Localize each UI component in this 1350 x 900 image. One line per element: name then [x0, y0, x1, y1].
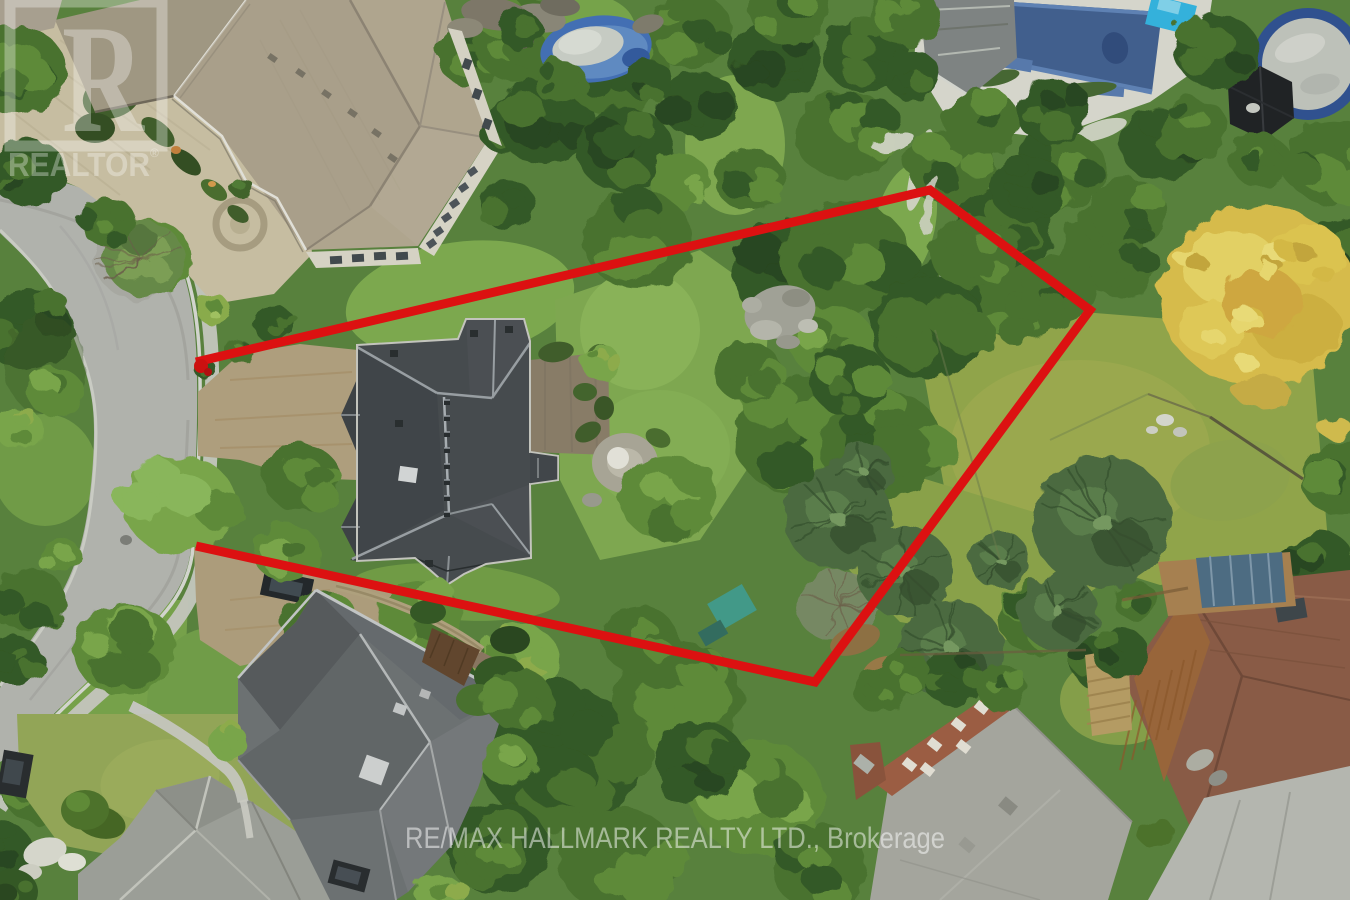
svg-text:REALTOR: REALTOR: [8, 146, 150, 183]
svg-text:RE/MAX HALLMARK REALTY LTD., B: RE/MAX HALLMARK REALTY LTD., Brokerage: [405, 822, 945, 855]
svg-text:R: R: [62, 0, 146, 165]
svg-text:®: ®: [150, 146, 159, 160]
